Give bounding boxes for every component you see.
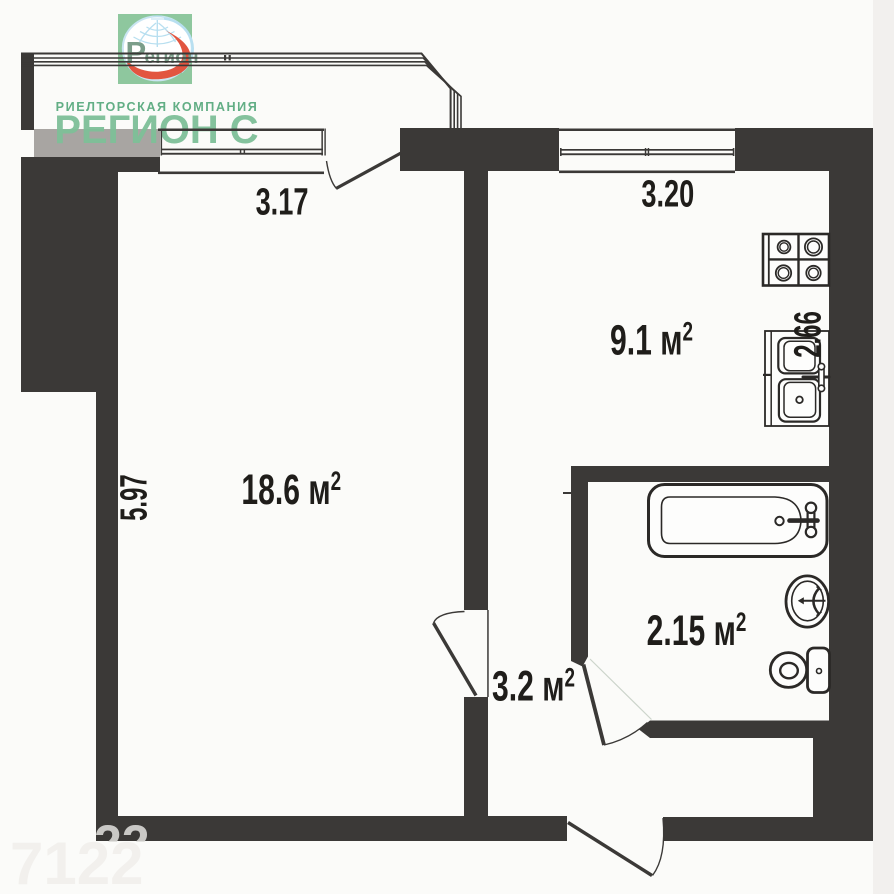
svg-text:3.2 м2: 3.2 м2 xyxy=(492,661,575,710)
svg-text:2.15 м2: 2.15 м2 xyxy=(647,606,747,655)
svg-text:9.1 м2: 9.1 м2 xyxy=(610,315,693,364)
svg-text:3.17: 3.17 xyxy=(256,180,309,223)
svg-text:2.66: 2.66 xyxy=(786,311,829,358)
svg-text:3.20: 3.20 xyxy=(641,172,694,215)
svg-text:5.97: 5.97 xyxy=(112,474,155,521)
svg-text:18.6 м2: 18.6 м2 xyxy=(241,465,341,514)
